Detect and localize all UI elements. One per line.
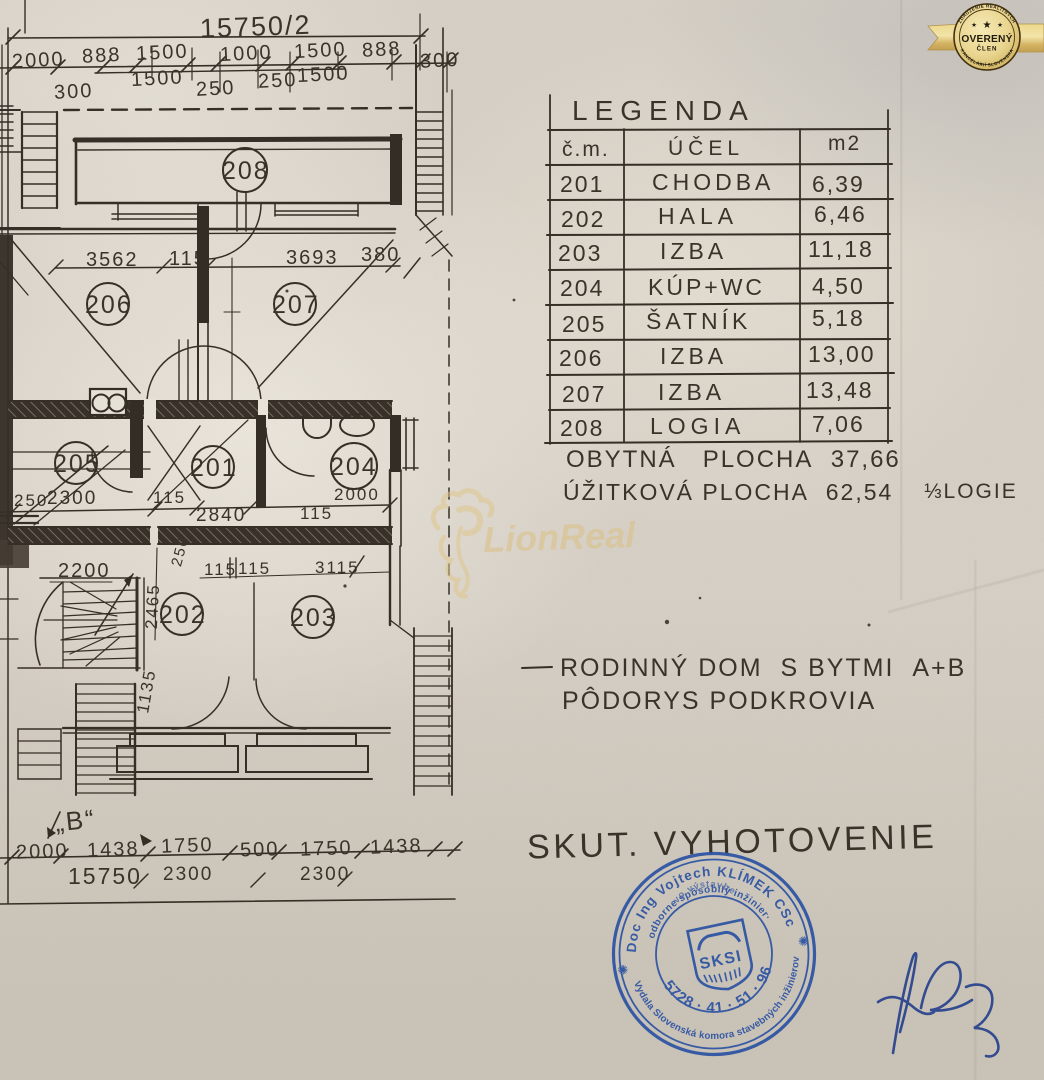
- svg-text:207: 207: [562, 381, 606, 407]
- svg-text:IZBA: IZBA: [660, 238, 727, 264]
- svg-text:203: 203: [558, 240, 602, 266]
- svg-text:300: 300: [53, 80, 93, 104]
- svg-text:888: 888: [81, 44, 121, 68]
- svg-text:OVERENÝ: OVERENÝ: [961, 32, 1012, 45]
- svg-text:202: 202: [561, 206, 605, 232]
- svg-text:1500: 1500: [131, 66, 185, 91]
- svg-text:2000: 2000: [12, 48, 66, 73]
- svg-text:2000: 2000: [16, 840, 69, 864]
- svg-text:2300: 2300: [47, 488, 97, 509]
- svg-text:207: 207: [272, 291, 320, 319]
- svg-text:PÔDORYS PODKROVIA: PÔDORYS PODKROVIA: [562, 686, 876, 715]
- svg-text:250: 250: [195, 77, 235, 101]
- svg-text:300: 300: [419, 49, 459, 73]
- svg-text:115: 115: [204, 560, 237, 579]
- svg-text:205: 205: [562, 311, 606, 337]
- svg-text:208: 208: [560, 415, 604, 441]
- svg-text:1438: 1438: [87, 838, 140, 862]
- svg-text:⅓LOGIE: ⅓LOGIE: [924, 480, 1018, 503]
- svg-text:ČLEN: ČLEN: [977, 46, 998, 53]
- svg-text:OBYTNÁ PLOCHA 37,66: OBYTNÁ PLOCHA 37,66: [566, 446, 901, 473]
- svg-text:4,50: 4,50: [812, 273, 865, 299]
- svg-text:13,48: 13,48: [806, 377, 874, 403]
- svg-text:202: 202: [159, 601, 207, 629]
- svg-text:2300: 2300: [163, 864, 213, 885]
- svg-text:★: ★: [983, 20, 992, 31]
- svg-text:13,00: 13,00: [808, 341, 876, 367]
- svg-text:LEGENDA: LEGENDA: [572, 95, 755, 126]
- svg-text:1500: 1500: [297, 62, 351, 87]
- svg-text:LOGIA: LOGIA: [650, 413, 745, 439]
- svg-text:2840: 2840: [196, 505, 246, 526]
- svg-text:250: 250: [14, 491, 48, 510]
- svg-text:206: 206: [85, 291, 133, 319]
- svg-text:208: 208: [222, 157, 270, 185]
- svg-text:203: 203: [290, 604, 338, 632]
- svg-text:★: ★: [997, 21, 1003, 29]
- svg-text:6,39: 6,39: [812, 171, 865, 197]
- svg-text:206: 206: [559, 345, 603, 371]
- svg-text:115: 115: [238, 559, 271, 578]
- svg-text:2000: 2000: [334, 485, 380, 504]
- svg-text:15750: 15750: [68, 863, 142, 889]
- svg-text:★: ★: [971, 21, 977, 29]
- svg-text:ÚČEL: ÚČEL: [668, 137, 744, 160]
- svg-text:1438: 1438: [370, 835, 423, 859]
- svg-text:1500: 1500: [294, 38, 348, 63]
- svg-text:204: 204: [330, 453, 378, 481]
- svg-text:1750: 1750: [161, 834, 214, 858]
- svg-text:CHODBA: CHODBA: [652, 169, 774, 195]
- svg-text:ÚŽITKOVÁ PLOCHA 62,54: ÚŽITKOVÁ PLOCHA 62,54: [563, 479, 893, 505]
- svg-text:250: 250: [257, 69, 297, 93]
- svg-text:1750: 1750: [300, 837, 353, 861]
- svg-text:ŠATNÍK: ŠATNÍK: [646, 307, 751, 334]
- svg-text:3562: 3562: [86, 249, 139, 271]
- svg-text:č.m.: č.m.: [562, 138, 610, 161]
- svg-text:5,18: 5,18: [812, 305, 865, 331]
- svg-text:11,18: 11,18: [808, 236, 874, 262]
- svg-text:IZBA: IZBA: [658, 379, 725, 405]
- svg-text:3693: 3693: [286, 247, 339, 269]
- svg-text:15750/2: 15750/2: [199, 10, 312, 44]
- svg-text:201: 201: [560, 171, 604, 197]
- svg-text:6,46: 6,46: [814, 201, 867, 227]
- svg-text:115: 115: [153, 488, 186, 507]
- svg-text:115: 115: [300, 504, 333, 523]
- svg-text:IZBA: IZBA: [660, 343, 727, 369]
- svg-text:500: 500: [240, 838, 280, 861]
- svg-text:1500: 1500: [136, 40, 190, 65]
- svg-text:RODINNÝ DOM S BYTMI A+B: RODINNÝ DOM S BYTMI A+B: [560, 653, 966, 682]
- svg-text:380: 380: [361, 244, 400, 266]
- svg-text:888: 888: [361, 38, 401, 62]
- svg-text:HALA: HALA: [658, 203, 738, 229]
- svg-text:m2: m2: [828, 132, 861, 155]
- svg-text:KÚP+WC: KÚP+WC: [648, 274, 765, 300]
- svg-text:1000: 1000: [220, 41, 274, 66]
- svg-text:7,06: 7,06: [812, 411, 865, 437]
- svg-text:LionReal: LionReal: [482, 514, 636, 560]
- svg-text:204: 204: [560, 275, 604, 301]
- svg-text:„B“: „B“: [54, 803, 98, 837]
- svg-text:2200: 2200: [58, 560, 111, 582]
